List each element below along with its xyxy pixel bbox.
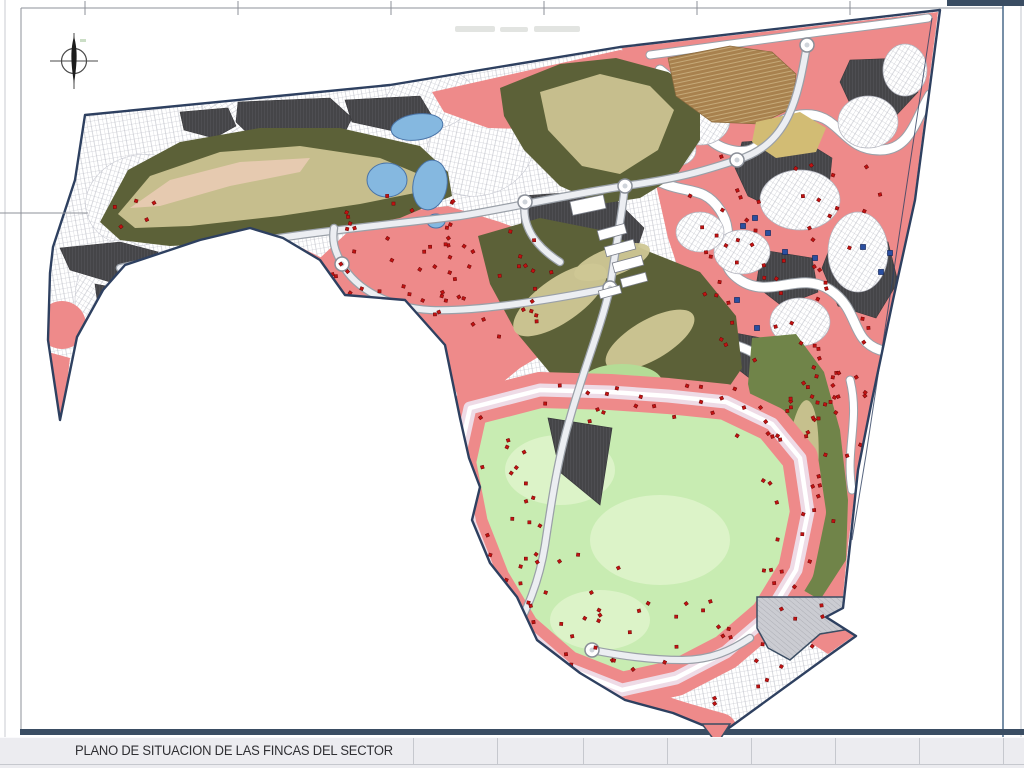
title-block-separator bbox=[919, 738, 920, 764]
title-block-separator bbox=[835, 738, 836, 764]
sheet-title: PLANO DE SITUACION DE LAS FINCAS DEL SEC… bbox=[75, 743, 393, 758]
topright-frame-bar bbox=[947, 0, 1024, 6]
site-plan-map bbox=[0, 0, 1024, 768]
title-block-separator bbox=[751, 738, 752, 764]
faint-annotation bbox=[455, 26, 580, 32]
title-block-line bbox=[0, 764, 1024, 765]
title-block-separator bbox=[1003, 738, 1004, 764]
bottom-frame-bar bbox=[20, 729, 1024, 735]
compass-north-icon bbox=[50, 33, 98, 89]
title-block-separator bbox=[583, 738, 584, 764]
plan-sheet: PLANO DE SITUACION DE LAS FINCAS DEL SEC… bbox=[0, 0, 1024, 768]
title-block: PLANO DE SITUACION DE LAS FINCAS DEL SEC… bbox=[0, 737, 1024, 768]
map-content bbox=[38, 10, 940, 733]
title-block-separator bbox=[497, 738, 498, 764]
title-block-separator bbox=[413, 738, 414, 764]
title-block-separator bbox=[667, 738, 668, 764]
meadow-layer bbox=[458, 390, 856, 690]
